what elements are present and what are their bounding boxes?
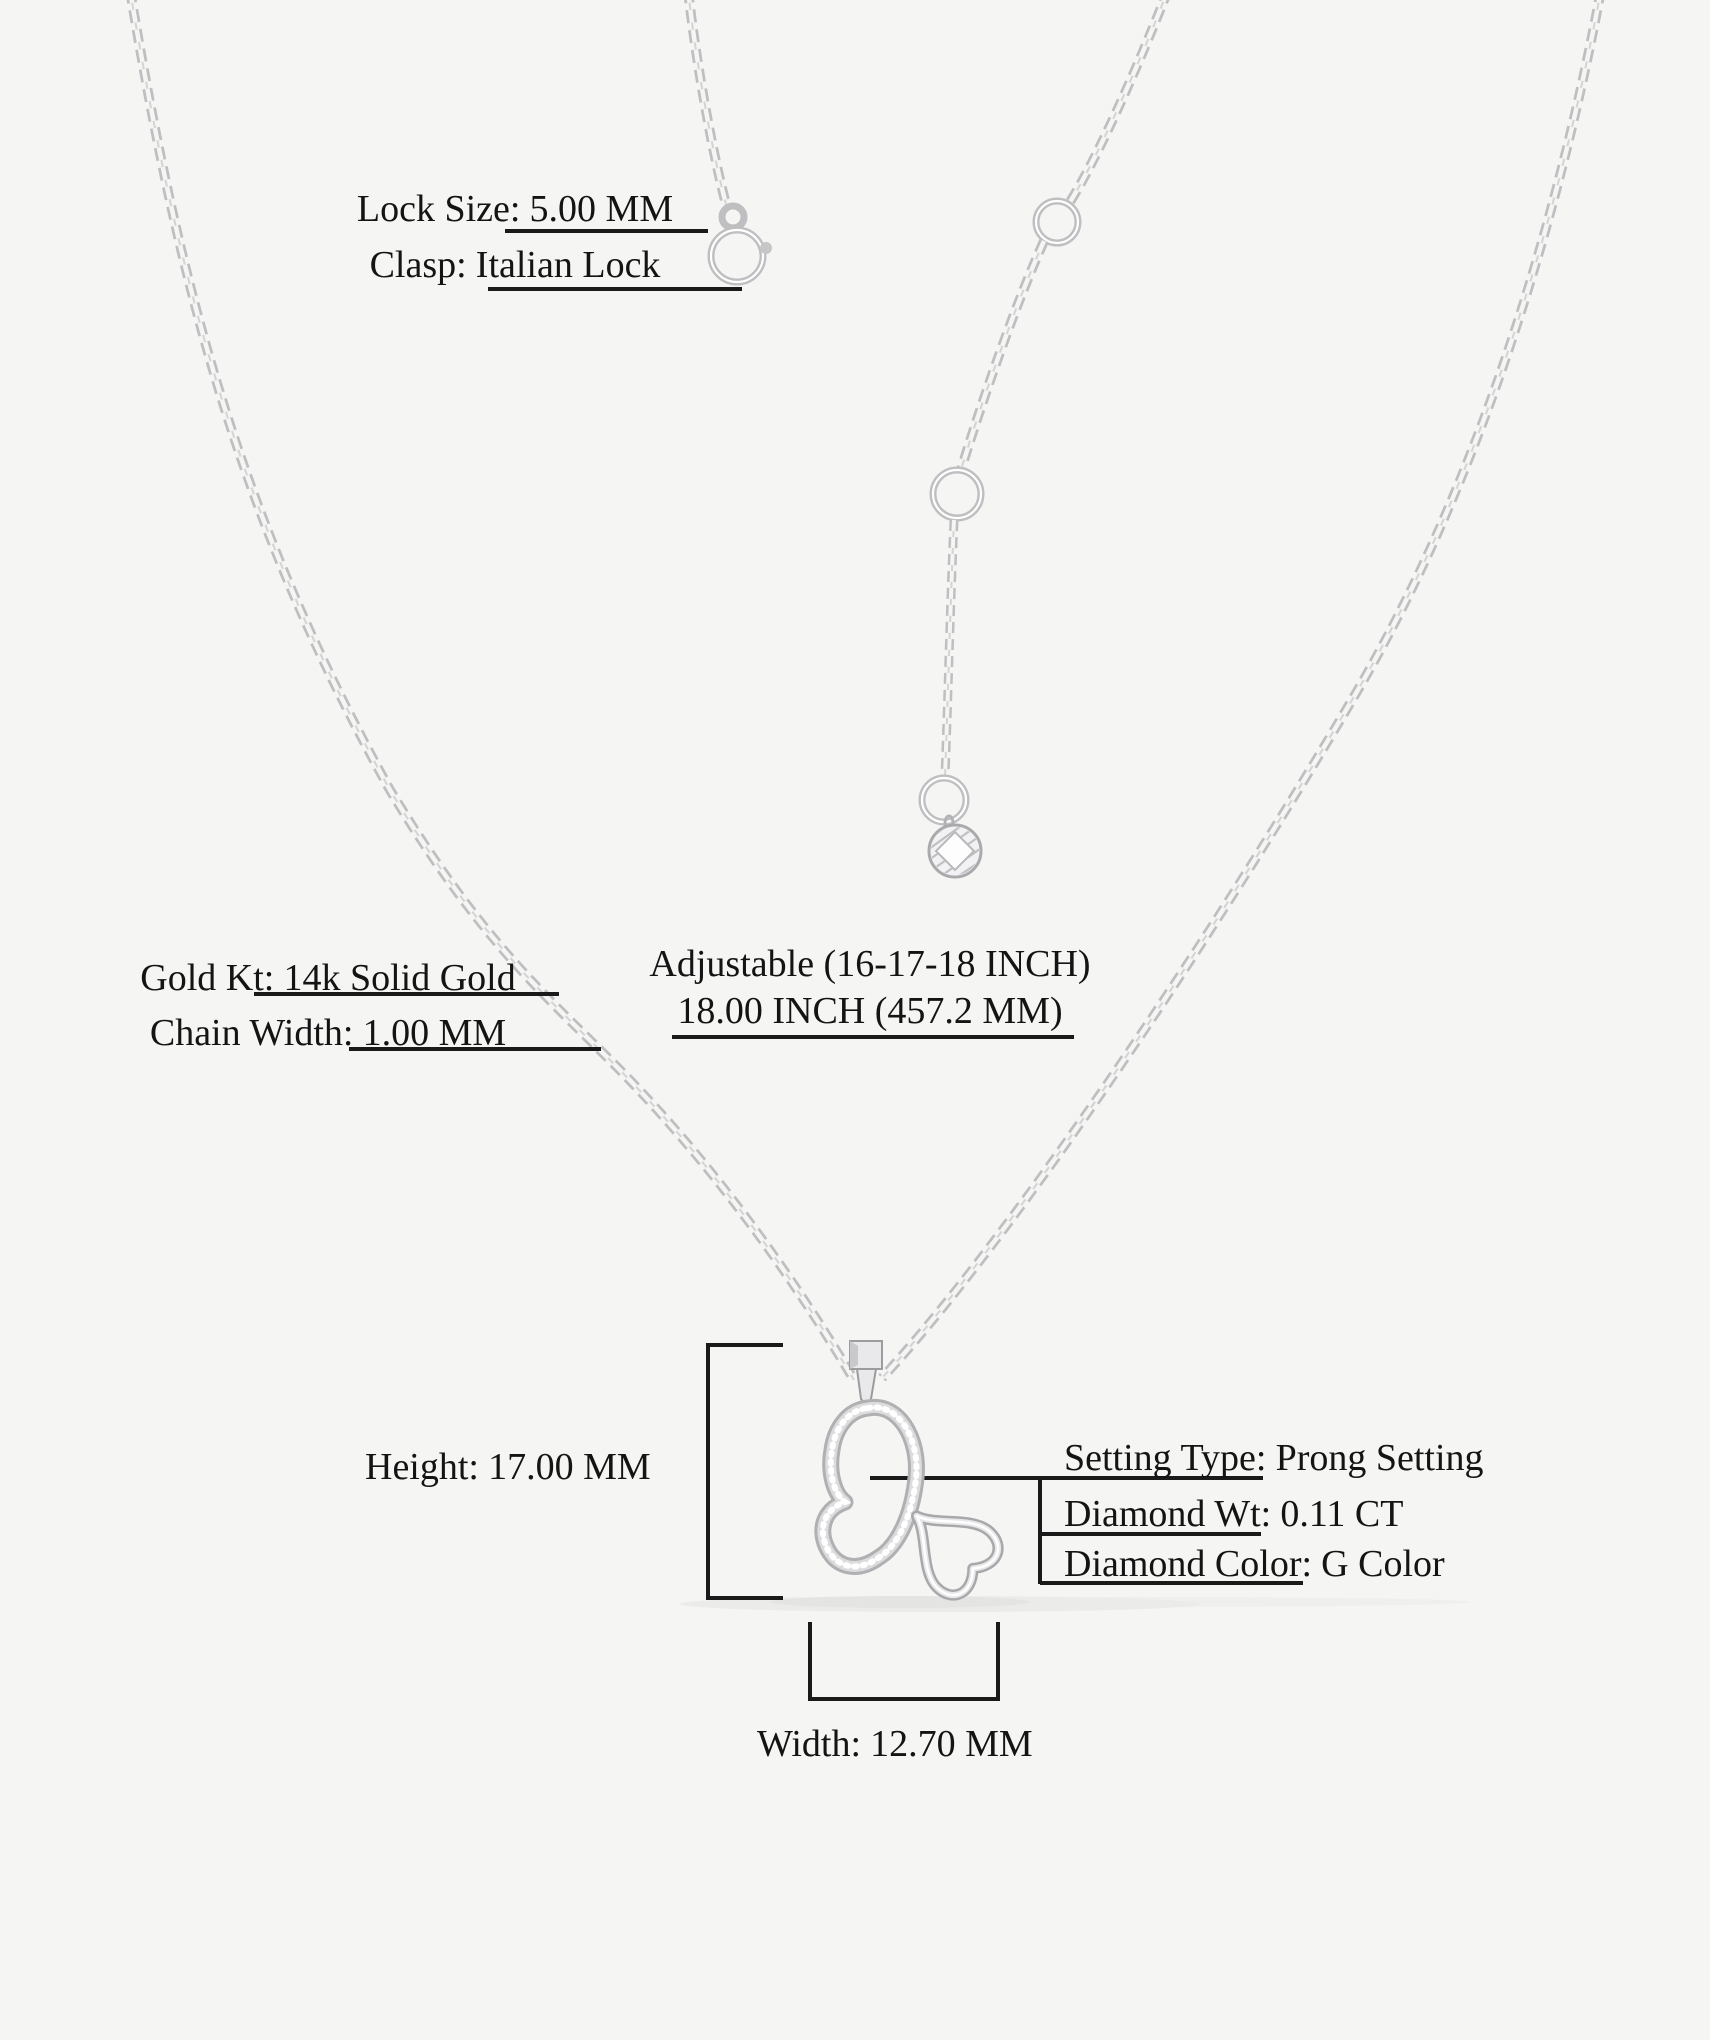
gold-chain-annotation-block: Gold Kt:14k Solid Gold Chain Width:1.00 … (118, 951, 538, 1061)
extender-drop (922, 470, 981, 830)
gold-kt-annotation: Gold Kt:14k Solid Gold (118, 951, 538, 1006)
necklace-spec-diagram: Lock Size:5.00 MM Clasp:Italian Lock Gol… (0, 0, 1710, 2040)
diamond-wt-annotation: Diamond Wt:0.11 CT (1064, 1492, 1403, 1536)
chain-clasp-strand (688, 0, 727, 208)
width-label: Width: (757, 1723, 861, 1765)
diamond-color-label: Diamond Color: (1064, 1543, 1312, 1585)
width-bracket (810, 1622, 998, 1699)
setting-type-annotation: Setting Type:Prong Setting (1064, 1436, 1484, 1480)
diamond-color-value: G Color (1321, 1543, 1445, 1585)
logo-tag (920, 812, 994, 886)
lock-size-label: Lock Size: (357, 188, 521, 230)
pendant-large-wing (823, 1407, 917, 1566)
butterfly-pendant (823, 1341, 1006, 1603)
diamond-color-annotation: Diamond Color:G Color (1064, 1542, 1445, 1586)
lock-size-annotation: Lock Size:5.00 MM (320, 181, 710, 237)
diamond-wt-value: 0.11 CT (1280, 1493, 1403, 1535)
pendant-shadow (680, 1596, 1470, 1612)
clasp-label: Clasp: (370, 244, 467, 286)
height-annotation: Height:17.00 MM (365, 1445, 651, 1489)
clasp-annotation: Clasp:Italian Lock (320, 237, 710, 293)
height-bracket (708, 1345, 783, 1598)
spring-ring-clasp (711, 206, 772, 282)
chain-width-label: Chain Width: (150, 1012, 354, 1054)
height-value: 17.00 MM (488, 1446, 651, 1488)
width-annotation: Width:12.70 MM (757, 1722, 1033, 1766)
chain-width-annotation: Chain Width:1.00 MM (118, 1006, 538, 1061)
chain-right-strand (882, 0, 1601, 1378)
height-label: Height: (365, 1446, 479, 1488)
diamond-wt-label: Diamond Wt: (1064, 1493, 1271, 1535)
chain-width-value: 1.00 MM (363, 1012, 507, 1054)
gold-kt-value: 14k Solid Gold (283, 957, 515, 999)
setting-type-value: Prong Setting (1276, 1437, 1484, 1479)
adjustable-annotation-block: Adjustable (16-17-18 INCH) 18.00 INCH (4… (620, 941, 1120, 1035)
setting-type-label: Setting Type: (1064, 1437, 1266, 1479)
adjustable-line1: Adjustable (16-17-18 INCH) (620, 941, 1120, 988)
clasp-value: Italian Lock (476, 244, 661, 286)
width-value: 12.70 MM (870, 1723, 1033, 1765)
lock-size-value: 5.00 MM (530, 188, 674, 230)
adjustable-line2: 18.00 INCH (457.2 MM) (620, 988, 1120, 1035)
lock-clasp-annotation-block: Lock Size:5.00 MM Clasp:Italian Lock (320, 181, 710, 293)
gold-kt-label: Gold Kt: (140, 957, 274, 999)
chain-extender-strand (961, 0, 1168, 470)
